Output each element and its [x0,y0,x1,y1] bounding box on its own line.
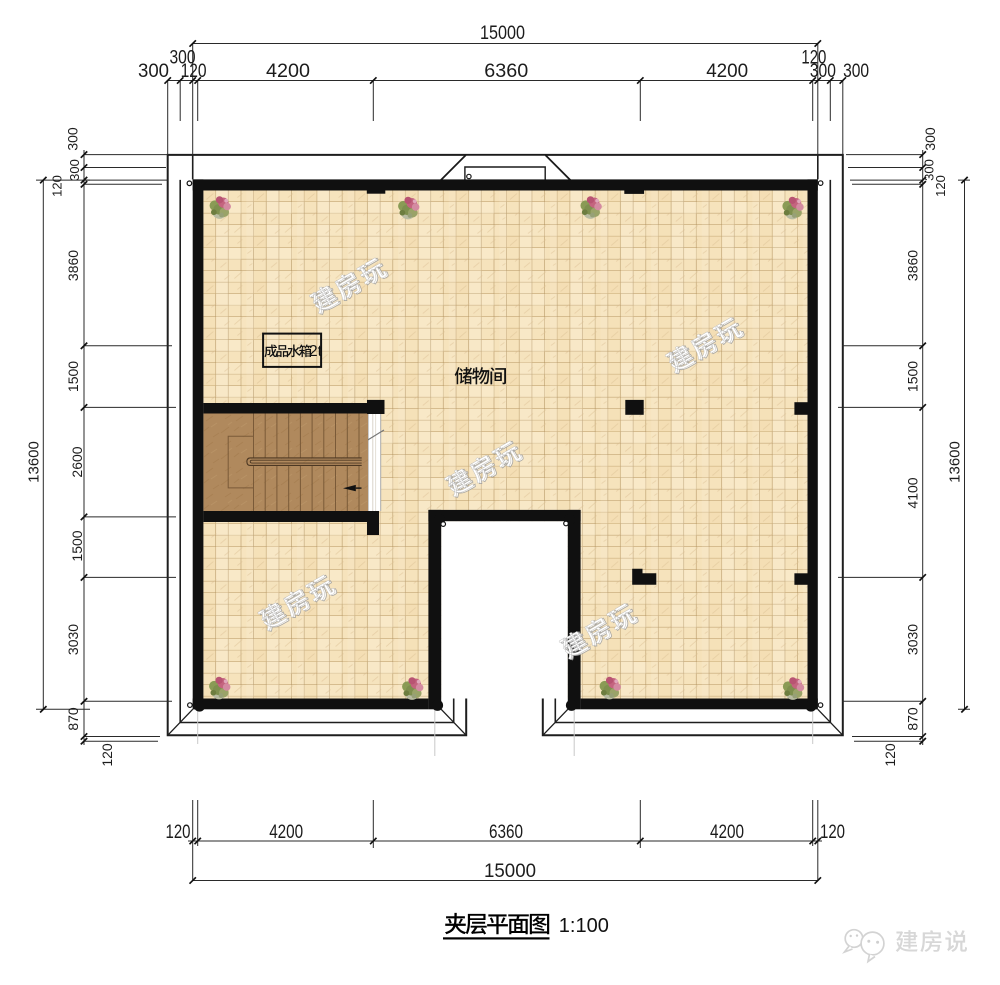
svg-text:4200: 4200 [706,61,748,82]
svg-text:1:100: 1:100 [559,915,609,937]
svg-text:300: 300 [922,127,938,151]
svg-text:3860: 3860 [905,250,921,281]
svg-text:3860: 3860 [65,250,81,281]
svg-text:1500: 1500 [905,361,921,392]
svg-text:120: 120 [181,61,207,82]
svg-text:300: 300 [810,61,836,82]
svg-text:870: 870 [905,707,921,731]
svg-text:4100: 4100 [905,477,921,508]
svg-text:120: 120 [50,175,65,197]
svg-text:4200: 4200 [710,822,744,843]
svg-text:4200: 4200 [269,822,303,843]
svg-text:120: 120 [166,822,191,843]
svg-text:4200: 4200 [266,61,310,82]
svg-text:6360: 6360 [489,822,523,843]
svg-text:120: 120 [882,743,898,767]
svg-text:120: 120 [933,175,948,197]
svg-text:1500: 1500 [65,361,81,392]
svg-text:300: 300 [843,61,869,82]
svg-text:2t: 2t [309,343,323,360]
svg-text:120: 120 [99,743,115,767]
svg-text:300: 300 [138,61,169,82]
svg-text:870: 870 [65,707,81,731]
svg-text:2600: 2600 [69,446,85,477]
svg-text:13600: 13600 [25,441,42,483]
svg-text:6360: 6360 [484,61,528,82]
svg-text:13600: 13600 [947,441,964,483]
svg-text:15000: 15000 [484,861,536,882]
svg-text:1500: 1500 [69,530,85,561]
svg-text:300: 300 [67,159,82,181]
svg-text:15000: 15000 [480,23,525,44]
svg-text:300: 300 [65,127,81,151]
svg-text:3030: 3030 [905,624,921,655]
svg-text:120: 120 [820,822,845,843]
svg-text:3030: 3030 [65,624,81,655]
